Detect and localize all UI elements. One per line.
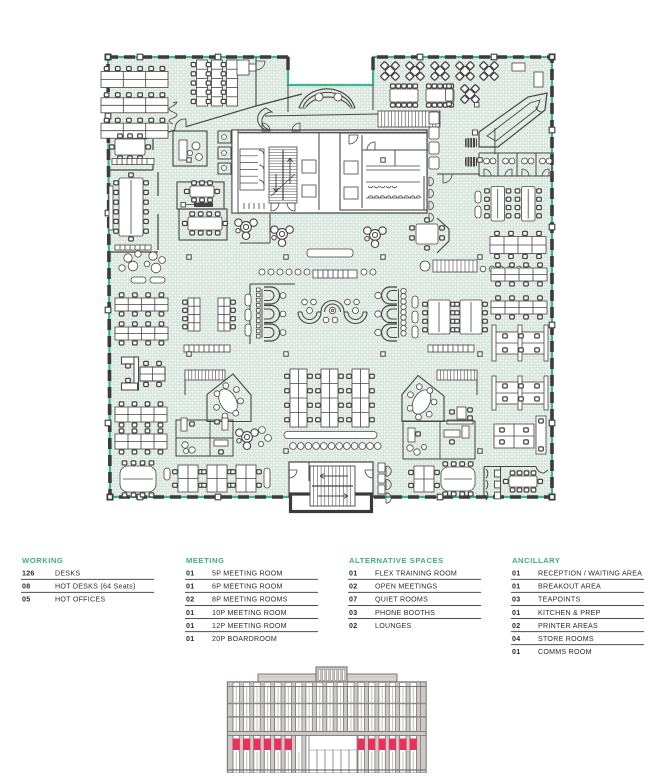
svg-text:ALTERNATIVE SPACES: ALTERNATIVE SPACES bbox=[349, 556, 444, 565]
svg-text:03: 03 bbox=[512, 596, 520, 604]
svg-text:01: 01 bbox=[349, 570, 357, 578]
svg-text:STORE ROOMS: STORE ROOMS bbox=[538, 635, 594, 643]
svg-text:01: 01 bbox=[186, 583, 194, 591]
svg-text:10P MEETING ROOM: 10P MEETING ROOM bbox=[212, 609, 287, 617]
svg-text:LOUNGES: LOUNGES bbox=[375, 622, 411, 630]
svg-text:07: 07 bbox=[349, 596, 357, 604]
svg-text:MEETING: MEETING bbox=[186, 556, 224, 565]
svg-text:01: 01 bbox=[186, 570, 194, 578]
svg-text:KITCHEN & PREP: KITCHEN & PREP bbox=[538, 609, 601, 617]
svg-text:5P MEETING ROOM: 5P MEETING ROOM bbox=[212, 570, 283, 578]
svg-text:08: 08 bbox=[22, 583, 30, 591]
svg-text:TEAPOINTS: TEAPOINTS bbox=[538, 596, 580, 604]
svg-text:QUIET ROOMS: QUIET ROOMS bbox=[375, 596, 428, 604]
svg-text:02: 02 bbox=[186, 596, 194, 604]
svg-text:01: 01 bbox=[512, 583, 520, 591]
svg-text:02: 02 bbox=[349, 622, 357, 630]
svg-text:126: 126 bbox=[22, 570, 35, 578]
svg-text:DESKS: DESKS bbox=[55, 570, 80, 578]
svg-text:PHONE BOOTHS: PHONE BOOTHS bbox=[375, 609, 435, 617]
svg-text:04: 04 bbox=[512, 635, 520, 643]
svg-text:PRINTER AREAS: PRINTER AREAS bbox=[538, 622, 598, 630]
svg-text:02: 02 bbox=[349, 583, 357, 591]
svg-text:01: 01 bbox=[512, 570, 520, 578]
svg-text:FLEX TRAINING ROOM: FLEX TRAINING ROOM bbox=[375, 570, 457, 578]
svg-text:03: 03 bbox=[349, 609, 357, 617]
svg-text:ANCILLARY: ANCILLARY bbox=[512, 556, 561, 565]
svg-text:WORKING: WORKING bbox=[22, 556, 63, 565]
svg-text:01: 01 bbox=[186, 622, 194, 630]
svg-text:RECEPTION / WAITING AREA: RECEPTION / WAITING AREA bbox=[538, 570, 642, 578]
svg-text:05: 05 bbox=[22, 596, 30, 604]
svg-text:02: 02 bbox=[512, 622, 520, 630]
svg-text:OPEN MEETINGS: OPEN MEETINGS bbox=[375, 583, 437, 591]
svg-text:01: 01 bbox=[186, 635, 194, 643]
svg-text:HOT OFFICES: HOT OFFICES bbox=[55, 596, 105, 604]
svg-text:01: 01 bbox=[186, 609, 194, 617]
svg-text:20P BOARDROOM: 20P BOARDROOM bbox=[212, 635, 277, 643]
svg-text:8P MEETING ROOMS: 8P MEETING ROOMS bbox=[212, 596, 288, 604]
svg-text:COMMS ROOM: COMMS ROOM bbox=[538, 648, 592, 656]
svg-text:01: 01 bbox=[512, 648, 520, 656]
svg-text:01: 01 bbox=[512, 609, 520, 617]
svg-text:BREAKOUT AREA: BREAKOUT AREA bbox=[538, 583, 601, 591]
svg-text:12P MEETING ROOM: 12P MEETING ROOM bbox=[212, 622, 287, 630]
svg-text:HOT DESKS (64 Seats): HOT DESKS (64 Seats) bbox=[55, 583, 136, 591]
svg-text:6P MEETING ROOM: 6P MEETING ROOM bbox=[212, 583, 283, 591]
